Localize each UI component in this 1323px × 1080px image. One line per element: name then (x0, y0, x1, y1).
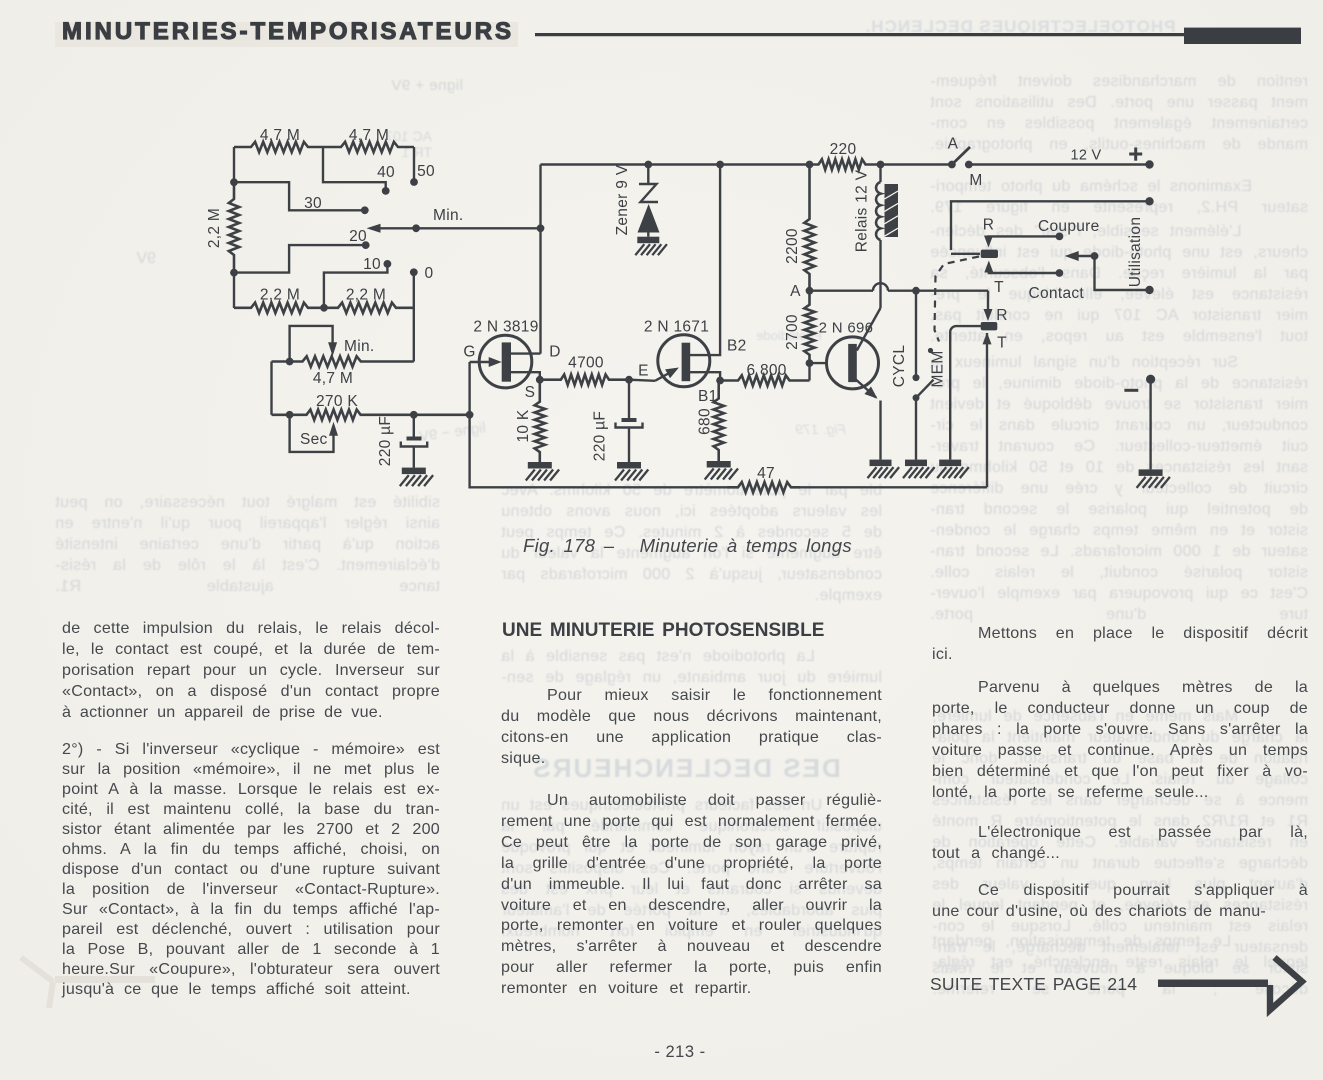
svg-text:T: T (994, 279, 1004, 296)
svg-text:A: A (948, 136, 959, 153)
svg-text:270 K: 270 K (316, 393, 358, 410)
svg-text:Utilisation: Utilisation (1127, 217, 1144, 288)
svg-text:2 N 696: 2 N 696 (819, 320, 874, 337)
svg-text:R: R (996, 307, 1008, 324)
svg-text:Coupure: Coupure (1038, 218, 1100, 235)
svg-text:MEM: MEM (930, 350, 947, 387)
svg-text:10: 10 (363, 256, 381, 273)
svg-text:Contact: Contact (1029, 285, 1085, 302)
svg-text:20: 20 (349, 228, 367, 245)
svg-text:2,2 M: 2,2 M (206, 208, 223, 248)
svg-text:680: 680 (697, 408, 714, 435)
svg-text:10 K: 10 K (515, 409, 532, 442)
svg-text:A: A (790, 283, 801, 300)
svg-text:4,7 M: 4,7 M (349, 127, 389, 144)
svg-text:Min.: Min. (433, 207, 463, 224)
svg-text:Min.: Min. (344, 338, 374, 355)
svg-text:2,2 M: 2,2 M (260, 287, 300, 304)
svg-text:2,2 M: 2,2 M (346, 287, 386, 304)
svg-text:Zener 9 V: Zener 9 V (614, 164, 631, 235)
svg-text:2700: 2700 (784, 314, 801, 350)
svg-text:D: D (549, 344, 561, 361)
svg-text:M: M (969, 172, 982, 189)
svg-text:0: 0 (425, 265, 434, 282)
svg-text:2 N 3819: 2 N 3819 (473, 319, 538, 336)
svg-text:S: S (525, 384, 536, 401)
svg-text:R: R (983, 217, 995, 234)
svg-text:47: 47 (757, 465, 775, 482)
svg-text:12 V: 12 V (1070, 147, 1101, 163)
svg-text:6 800: 6 800 (746, 362, 786, 379)
svg-text:2 N 1671: 2 N 1671 (644, 319, 709, 336)
svg-text:T: T (997, 335, 1007, 352)
svg-text:220 µF: 220 µF (377, 416, 394, 466)
svg-text:50: 50 (417, 163, 435, 180)
svg-text:220: 220 (830, 141, 857, 158)
svg-text:E: E (638, 363, 649, 380)
svg-text:30: 30 (304, 195, 322, 212)
svg-text:2200: 2200 (784, 228, 801, 264)
svg-text:4,7 M: 4,7 M (313, 370, 353, 387)
svg-text:B2: B2 (727, 338, 747, 355)
svg-text:G: G (463, 344, 475, 361)
svg-text:40: 40 (377, 164, 395, 181)
svg-text:4,7 M: 4,7 M (260, 127, 300, 144)
svg-text:4700: 4700 (568, 355, 604, 372)
svg-text:B1: B1 (698, 388, 718, 405)
svg-text:Relais 12 V: Relais 12 V (854, 169, 871, 252)
svg-text:CYCL: CYCL (891, 345, 908, 388)
svg-text:220 µF: 220 µF (592, 411, 609, 461)
svg-text:Sec: Sec (300, 431, 328, 448)
